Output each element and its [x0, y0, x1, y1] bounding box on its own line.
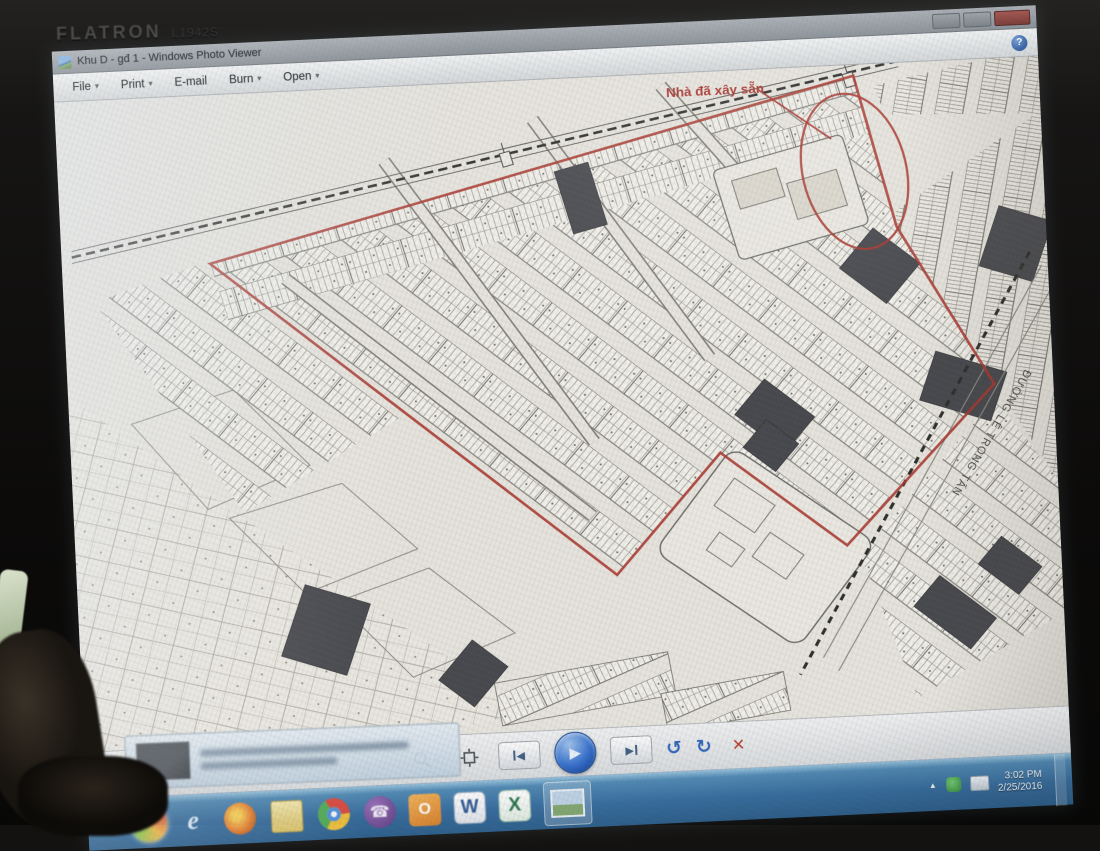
sticky-note-icon [270, 799, 303, 832]
network-icon[interactable] [969, 775, 989, 791]
taskbar-icon-chrome[interactable] [316, 796, 352, 832]
tray-expand-arrow[interactable]: ▲ [929, 781, 937, 790]
menu-item-burn[interactable]: Burn ▾ [220, 69, 271, 89]
chrome-icon [317, 797, 350, 830]
previous-button[interactable]: ◀ [498, 740, 541, 770]
email-label: E-mail [174, 75, 207, 89]
next-icon: ▶ [625, 744, 634, 757]
burn-label: Burn [229, 73, 254, 86]
rotate-ccw-button[interactable]: ↺ [666, 736, 683, 760]
play-icon: ▶ [569, 744, 581, 763]
chevron-down-icon: ▾ [148, 79, 152, 88]
clock-time: 3:02 PM [1004, 768, 1042, 781]
taskbar-icon-excel[interactable]: X [498, 788, 531, 821]
picture-icon [550, 788, 585, 818]
taskbar-icon-firefox[interactable] [222, 800, 258, 836]
brand-text: FLATRON [56, 21, 162, 44]
foreground-object [18, 756, 168, 836]
close-button[interactable] [994, 9, 1031, 26]
delete-button[interactable]: ✕ [731, 735, 745, 756]
taskbar-icon-word[interactable]: W [453, 791, 486, 824]
blurred-line [200, 757, 337, 769]
help-button[interactable]: ? [1011, 34, 1028, 51]
maximize-button[interactable] [963, 11, 992, 27]
open-label: Open [283, 70, 312, 83]
system-tray: ▲ 3:02 PM 2/25/2016 [928, 753, 1074, 812]
chevron-down-icon: ▾ [257, 74, 261, 83]
housing-blocks-south [494, 652, 676, 726]
taskbar-icon-viber[interactable]: ☎ [363, 795, 396, 828]
next-button[interactable]: ▶ [609, 735, 652, 765]
taskbar-icon-outlook[interactable]: O [408, 793, 441, 826]
chevron-down-icon: ▾ [95, 81, 99, 90]
site-plan-map: ĐƯỜNG LÊ TRỌNG TẤN Nhà đã xây sẵn [54, 56, 1069, 752]
menu-item-print[interactable]: Print ▾ [111, 74, 161, 94]
blurred-text-lines [200, 740, 450, 770]
play-slideshow-button[interactable]: ▶ [553, 731, 597, 775]
tray-app-icon[interactable] [945, 777, 961, 793]
taskbar-icon-notes[interactable] [269, 798, 305, 834]
menu-item-file[interactable]: File ▾ [63, 77, 108, 97]
monitor-screen: Khu D - gđ 1 - Windows Photo Viewer File… [52, 5, 1074, 851]
model-text: L1942S [172, 25, 220, 40]
photo-viewer-app-icon [58, 55, 72, 69]
photo-display-area: ĐƯỜNG LÊ TRỌNG TẤN Nhà đã xây sẵn [54, 56, 1069, 752]
chevron-down-icon: ▾ [315, 71, 319, 80]
minimize-button[interactable] [932, 12, 961, 28]
clock-date: 2/25/2016 [998, 780, 1043, 793]
taskbar-button-photo-viewer-active[interactable] [543, 780, 593, 826]
firefox-icon [223, 801, 256, 834]
monitor-brand-logo: FLATRONL1942S [56, 20, 219, 45]
taskbar-clock[interactable]: 3:02 PM 2/25/2016 [997, 768, 1043, 794]
file-label: File [72, 80, 91, 93]
rotate-cw-button[interactable]: ↻ [695, 735, 712, 759]
menu-item-open[interactable]: Open ▾ [274, 66, 329, 87]
menu-item-email[interactable]: E-mail [165, 71, 216, 91]
show-desktop-button[interactable] [1054, 753, 1067, 805]
blurred-line [200, 741, 409, 756]
fit-to-window-icon [460, 748, 479, 767]
print-label: Print [121, 78, 145, 91]
prev-icon: ◀ [516, 749, 525, 762]
next-bar-icon [635, 745, 637, 755]
taskbar-icon-internet-explorer[interactable]: e [175, 803, 211, 839]
window-title: Khu D - gđ 1 - Windows Photo Viewer [77, 47, 262, 68]
